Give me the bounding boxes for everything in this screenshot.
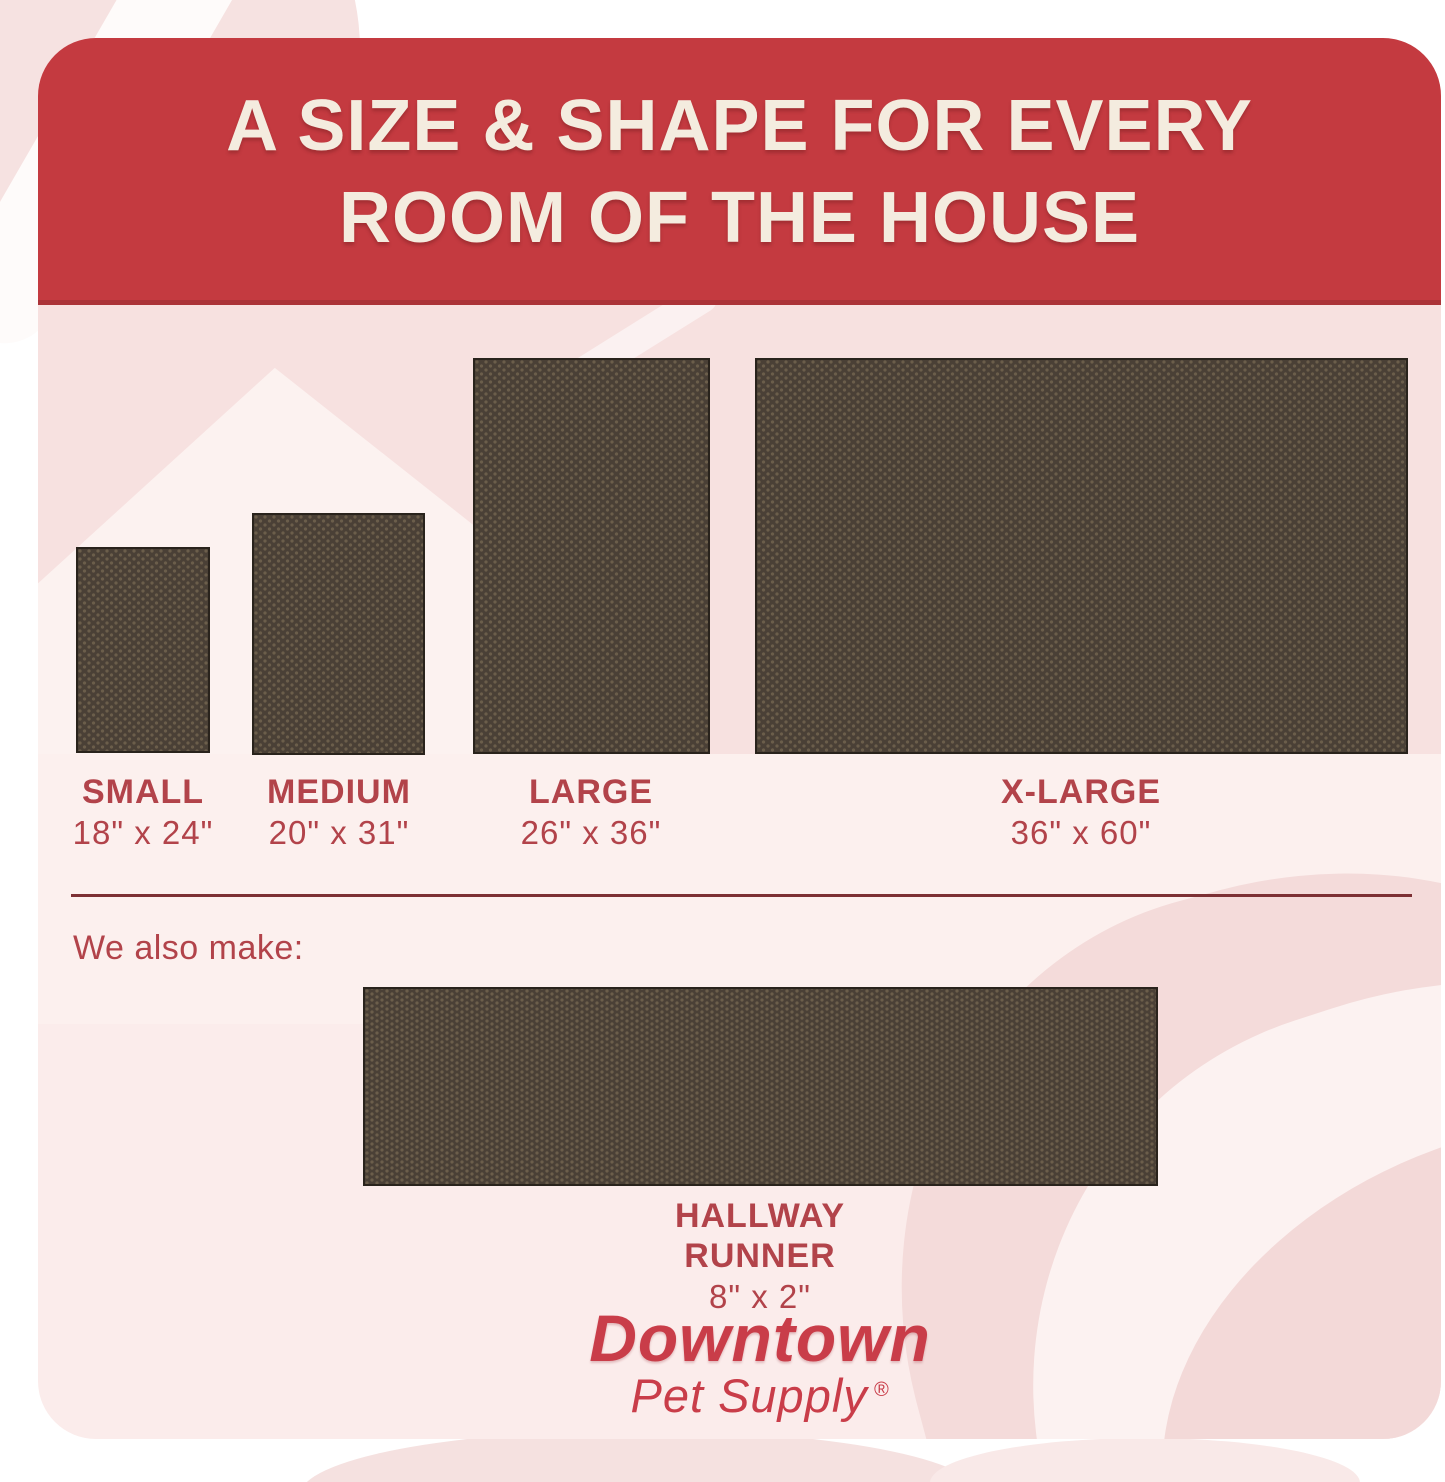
size-name-medium: MEDIUM bbox=[209, 772, 469, 812]
brand-tagline-text: Pet Supply bbox=[630, 1369, 867, 1422]
size-label-medium: MEDIUM 20" x 31" bbox=[209, 772, 469, 850]
header-title-line2: ROOM OF THE HOUSE bbox=[38, 172, 1441, 264]
size-dimensions-xlarge: 36" x 60" bbox=[951, 816, 1211, 850]
rug-swatch-medium bbox=[252, 513, 425, 755]
brand-logo: Downtown Pet Supply® bbox=[440, 1302, 1080, 1416]
size-name-hallway-runner: HALLWAY RUNNER bbox=[600, 1196, 920, 1276]
registered-mark-icon: ® bbox=[874, 1379, 890, 1401]
also-make-heading: We also make: bbox=[73, 927, 304, 969]
size-name-large: LARGE bbox=[461, 772, 721, 812]
rug-swatch-large bbox=[473, 358, 710, 754]
content-card: A SIZE & SHAPE FOR EVERY ROOM OF THE HOU… bbox=[38, 38, 1441, 1439]
brand-tagline: Pet Supply® bbox=[440, 1370, 1080, 1416]
size-dimensions-medium: 20" x 31" bbox=[209, 816, 469, 850]
infographic-page: A SIZE & SHAPE FOR EVERY ROOM OF THE HOU… bbox=[0, 0, 1445, 1482]
size-label-large: LARGE 26" x 36" bbox=[461, 772, 721, 850]
header-title-line1: A SIZE & SHAPE FOR EVERY bbox=[38, 80, 1441, 172]
background-blob-bottom-right bbox=[930, 1438, 1360, 1482]
size-label-hallway-runner: HALLWAY RUNNER 8" x 2" bbox=[600, 1196, 920, 1314]
size-dimensions-large: 26" x 36" bbox=[461, 816, 721, 850]
rug-swatch-xlarge bbox=[755, 358, 1408, 754]
size-name-xlarge: X-LARGE bbox=[951, 772, 1211, 812]
rug-swatch-small bbox=[76, 547, 210, 753]
brand-wordmark: Downtown bbox=[440, 1302, 1080, 1374]
header-banner: A SIZE & SHAPE FOR EVERY ROOM OF THE HOU… bbox=[38, 38, 1441, 305]
rug-swatch-hallway-runner bbox=[363, 987, 1158, 1186]
size-label-xlarge: X-LARGE 36" x 60" bbox=[951, 772, 1211, 850]
divider-line bbox=[71, 894, 1412, 897]
